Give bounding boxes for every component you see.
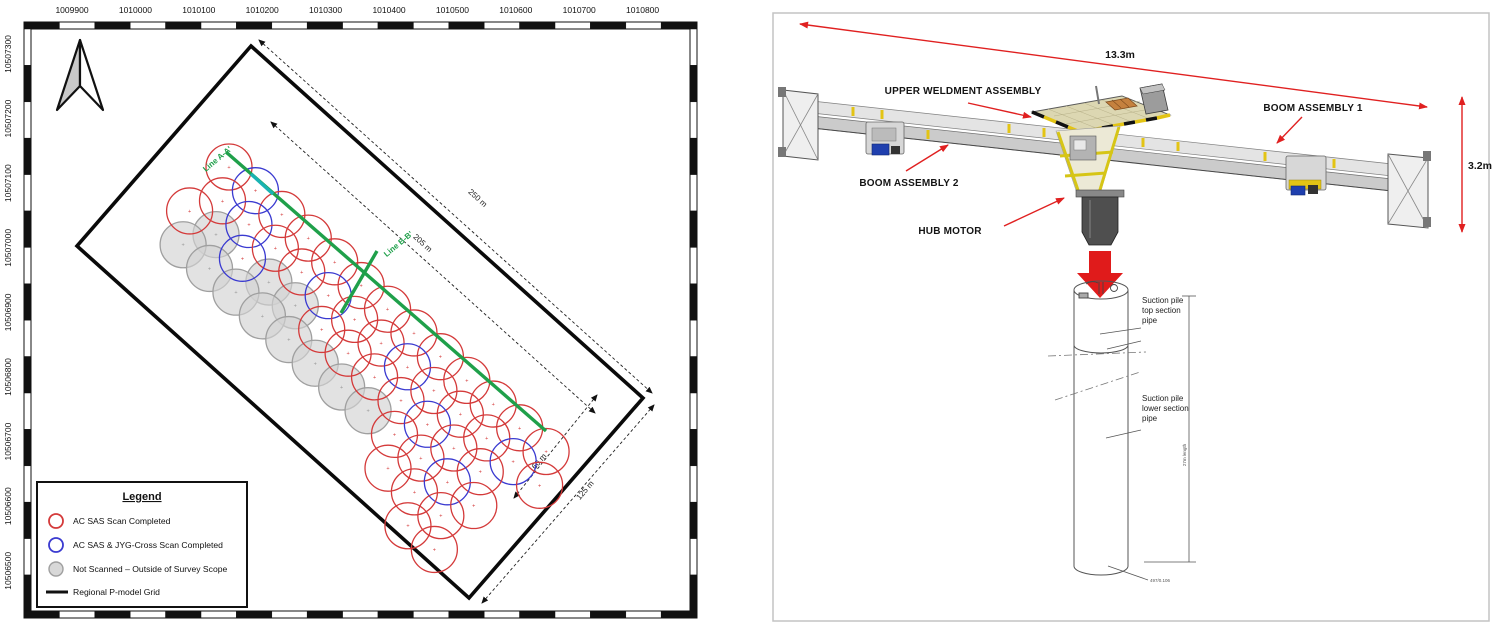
height-dim-label: 3.2m xyxy=(1468,160,1492,172)
circle-center-marker: + xyxy=(492,402,495,408)
hub-motor-label: HUB MOTOR xyxy=(918,226,982,237)
neatline-segment xyxy=(449,22,484,29)
neatline-segment xyxy=(201,611,236,618)
neatline-segment xyxy=(343,611,378,618)
circle-center-marker: + xyxy=(314,361,317,367)
circle-center-marker: + xyxy=(188,209,191,215)
neatline-segment xyxy=(690,247,697,283)
neatline-segment xyxy=(343,22,378,29)
neatline-segment xyxy=(24,393,31,429)
y-axis-tick-label: 10506500 xyxy=(3,552,13,590)
legend-gray-disc-icon xyxy=(49,562,63,576)
y-axis-tick-label: 10507300 xyxy=(3,35,13,73)
circle-center-marker: + xyxy=(412,331,415,337)
circle-center-marker: + xyxy=(261,314,264,320)
neatline-segment xyxy=(590,611,625,618)
neatline-segment xyxy=(24,175,31,211)
neatline-segment xyxy=(555,22,590,29)
neatline-segment xyxy=(24,29,31,65)
boom-left-end-frame xyxy=(778,87,818,160)
circle-center-marker: + xyxy=(294,304,297,310)
x-axis-tick-label: 1010800 xyxy=(626,5,659,15)
circle-center-marker: + xyxy=(386,466,389,472)
circle-center-marker: + xyxy=(485,436,488,442)
neatline-segment xyxy=(166,611,201,618)
neatline-segment xyxy=(24,502,31,538)
circle-center-marker: + xyxy=(333,260,336,266)
circle-center-marker: + xyxy=(406,524,409,530)
y-axis-tick-label: 10507100 xyxy=(3,164,13,202)
neatline-segment xyxy=(95,22,130,29)
circle-center-marker: + xyxy=(208,266,211,272)
line-bb-label: Line B-B' xyxy=(382,229,415,258)
north-arrow-icon xyxy=(57,40,103,110)
neatline-segment xyxy=(690,429,697,465)
boom-right-end-frame xyxy=(1388,151,1431,228)
pile-top-section-label: Suction pile top section pipe xyxy=(1142,296,1190,326)
y-axis-tick-label: 10507000 xyxy=(3,229,13,267)
x-axis-tick-label: 1010400 xyxy=(372,5,405,15)
y-axis-tick-label: 10506600 xyxy=(3,487,13,525)
neatline-segment xyxy=(24,138,31,174)
neatline-segment xyxy=(520,611,555,618)
dim-label-125m: 125 m xyxy=(574,479,596,502)
neatline-segment xyxy=(661,22,696,29)
circle-center-marker: + xyxy=(267,280,270,286)
circle-center-marker: + xyxy=(544,449,547,455)
neatline-segment xyxy=(95,611,130,618)
circle-center-marker: + xyxy=(512,460,515,466)
neatline-segment xyxy=(484,22,519,29)
neatline-segment xyxy=(130,22,165,29)
circle-center-marker: + xyxy=(373,375,376,381)
circle-center-marker: + xyxy=(426,422,429,428)
neatline-segment xyxy=(24,539,31,575)
y-axis-tick-label: 10506900 xyxy=(3,293,13,331)
neatline-segment xyxy=(24,102,31,138)
neatline-segment xyxy=(24,22,59,29)
circle-center-marker: + xyxy=(320,327,323,333)
neatline-segment xyxy=(307,22,342,29)
dim-label-205m: 205 m xyxy=(411,232,434,254)
neatline-segment xyxy=(24,65,31,101)
circle-center-marker: + xyxy=(459,412,462,418)
equipment-panel: UPPER WELDMENT ASSEMBLY BOOM ASSEMBLY 1 … xyxy=(773,13,1492,621)
circle-center-marker: + xyxy=(274,246,277,252)
neatline-segment xyxy=(378,611,413,618)
legend-item: Not Scanned – Outside of Survey Scope xyxy=(73,564,228,574)
neatline-segment xyxy=(690,138,697,174)
neatline-segment xyxy=(130,611,165,618)
neatline-segment xyxy=(690,320,697,356)
neatline-segment xyxy=(24,320,31,356)
neatline-segment xyxy=(24,575,31,611)
neatline-segment xyxy=(690,357,697,393)
circle-center-marker: + xyxy=(379,341,382,347)
boom-left-trolley xyxy=(866,122,904,155)
x-axis-tick-label: 1010500 xyxy=(436,5,469,15)
dim-line-125m xyxy=(482,405,654,603)
circle-center-marker: + xyxy=(433,547,436,553)
circle-center-marker: + xyxy=(399,399,402,405)
x-axis-tick-label: 1009900 xyxy=(55,5,88,15)
neatline-segment xyxy=(24,429,31,465)
neatline-segment xyxy=(59,22,94,29)
circle-center-marker: + xyxy=(241,256,244,262)
neatline-segment xyxy=(236,611,271,618)
neatline-segment xyxy=(236,22,271,29)
neatline-segment xyxy=(690,502,697,538)
circle-center-marker: + xyxy=(307,236,310,242)
dim-label-250m: 250 m xyxy=(466,187,489,209)
x-axis-tick-label: 1010700 xyxy=(563,5,596,15)
y-axis-tick-label: 10506700 xyxy=(3,422,13,460)
neatline-segment xyxy=(626,611,661,618)
circle-center-marker: + xyxy=(234,290,237,296)
circle-center-marker: + xyxy=(181,243,184,249)
x-axis-tick-label: 1010000 xyxy=(119,5,152,15)
figure-canvas: 1009900101000010101001010200101030010104… xyxy=(0,0,1500,632)
neatline-segment xyxy=(484,611,519,618)
neatline-segment xyxy=(690,575,697,611)
circle-center-marker: + xyxy=(360,284,363,290)
neatline-segment xyxy=(24,611,59,618)
legend-title: Legend xyxy=(122,491,161,503)
neatline-segment xyxy=(661,611,696,618)
neatline-segment xyxy=(307,611,342,618)
y-axis-tick-label: 10506800 xyxy=(3,358,13,396)
neatline-segment xyxy=(378,22,413,29)
x-axis-tick-label: 1010100 xyxy=(182,5,215,15)
legend-item: AC SAS Scan Completed xyxy=(73,516,171,526)
circle-center-marker: + xyxy=(340,385,343,391)
circle-center-marker: + xyxy=(439,514,442,520)
neatline-segment xyxy=(690,466,697,502)
neatline-segment xyxy=(24,466,31,502)
circle-center-marker: + xyxy=(247,223,250,229)
neatline-segment xyxy=(690,211,697,247)
neatline-segment xyxy=(24,247,31,283)
circle-center-marker: + xyxy=(406,365,409,371)
neatline-segment xyxy=(24,357,31,393)
boom-right-trolley xyxy=(1286,156,1326,195)
circle-center-marker: + xyxy=(439,355,442,361)
width-dim-label: 13.3m xyxy=(1105,49,1135,61)
pile-lower-section-label: Suction pile lower section pipe xyxy=(1142,394,1190,424)
boom2-label: BOOM ASSEMBLY 2 xyxy=(859,178,959,189)
circle-center-marker: + xyxy=(287,338,290,344)
circle-center-marker: + xyxy=(432,388,435,394)
circle-center-marker: + xyxy=(465,378,468,384)
neatline-segment xyxy=(520,22,555,29)
figure-svg: 1009900101000010101001010200101030010104… xyxy=(0,0,1500,632)
circle-center-marker: + xyxy=(452,446,455,452)
dimension-lines xyxy=(259,40,654,603)
survey-map-panel: 1009900101000010101001010200101030010104… xyxy=(3,5,697,618)
neatline-segment xyxy=(24,211,31,247)
circle-center-marker: + xyxy=(518,426,521,432)
neatline-segment xyxy=(690,29,697,65)
circle-center-marker: + xyxy=(479,470,482,476)
legend-item: AC SAS & JYG-Cross Scan Completed xyxy=(73,540,223,550)
circle-center-marker: + xyxy=(472,504,475,510)
pile-length-note: 27m length xyxy=(1182,443,1187,466)
neatline-segment xyxy=(690,284,697,320)
circle-center-marker: + xyxy=(366,409,369,415)
circle-center-marker: + xyxy=(300,270,303,276)
neatline-segment xyxy=(272,22,307,29)
neatline-segment xyxy=(449,611,484,618)
y-axis-tick-label: 10507200 xyxy=(3,99,13,137)
neatline-segment xyxy=(555,611,590,618)
upper-weldment-label: UPPER WELDMENT ASSEMBLY xyxy=(885,86,1042,97)
circle-center-marker: + xyxy=(327,294,330,300)
x-axis-labels: 1009900101000010101001010200101030010104… xyxy=(55,5,659,15)
circle-center-marker: + xyxy=(227,165,230,171)
circle-center-marker: + xyxy=(254,189,257,195)
neatline-segment xyxy=(690,65,697,101)
neatline-segment xyxy=(626,22,661,29)
neatline-segment xyxy=(166,22,201,29)
circle-center-marker: + xyxy=(221,199,224,205)
neatline-segment xyxy=(272,611,307,618)
neatline-segment xyxy=(690,175,697,211)
x-axis-tick-label: 1010300 xyxy=(309,5,342,15)
circle-center-marker: + xyxy=(419,456,422,462)
neatline-segment xyxy=(413,22,448,29)
circle-center-marker: + xyxy=(214,233,217,239)
neatline-segment xyxy=(201,22,236,29)
circle-center-marker: + xyxy=(446,480,449,486)
pile-base-note: 497/0.106 xyxy=(1150,578,1171,583)
circle-center-marker: + xyxy=(347,351,350,357)
circle-center-marker: + xyxy=(386,307,389,313)
x-axis-tick-label: 1010200 xyxy=(246,5,279,15)
circle-center-marker: + xyxy=(413,490,416,496)
neatline-segment xyxy=(24,284,31,320)
neatline-segment xyxy=(690,539,697,575)
neatline-segment xyxy=(690,393,697,429)
y-axis-labels: 1050730010507200105071001050700010506900… xyxy=(3,35,13,590)
neatline-segment xyxy=(59,611,94,618)
circle-center-marker: + xyxy=(280,212,283,218)
circle-center-marker: + xyxy=(393,432,396,438)
neatline-segment xyxy=(690,102,697,138)
neatline-segment xyxy=(413,611,448,618)
dim-line-60m xyxy=(514,395,597,498)
boom1-label: BOOM ASSEMBLY 1 xyxy=(1263,103,1363,114)
circle-center-marker: + xyxy=(538,483,541,489)
x-axis-tick-label: 1010600 xyxy=(499,5,532,15)
neatline-segment xyxy=(590,22,625,29)
legend-box: Legend AC SAS Scan Completed AC SAS & JY… xyxy=(37,482,247,607)
legend-item: Regional P-model Grid xyxy=(73,587,160,597)
circle-center-marker: + xyxy=(353,317,356,323)
